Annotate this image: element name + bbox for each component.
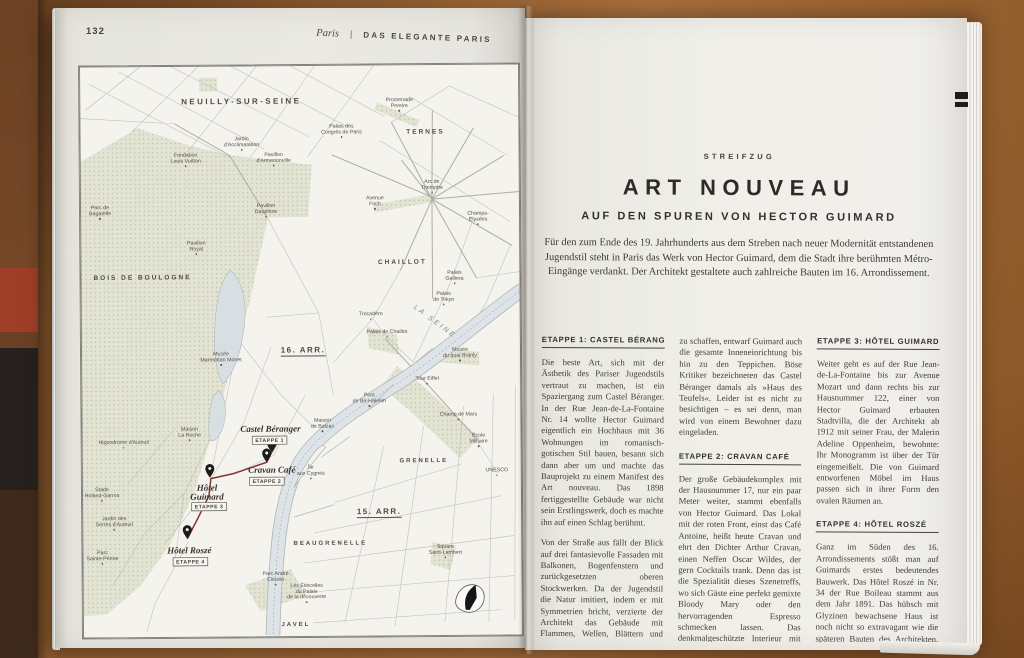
- map-region-label: NEUILLY-SUR-SEINE: [181, 96, 301, 106]
- text-column: ETAPPE 3: HÔTEL GUIMARDWeiter geht es au…: [816, 336, 940, 643]
- map-poi-label: Champs- Élysées: [467, 211, 489, 225]
- paris-map: NEUILLY-SUR-SEINETERNESBOIS DE BOULOGNEC…: [78, 62, 524, 639]
- etappe-heading: ETAPPE 3: HÔTEL GUIMARD: [817, 336, 940, 350]
- map-poi-label: Pavillon d'Armenonville: [256, 152, 291, 166]
- page-number: 132: [86, 26, 105, 37]
- running-header-chapter: DAS ELEGANTE PARIS: [363, 31, 492, 45]
- running-header-separator: |: [350, 29, 353, 39]
- etappe-heading: ETAPPE 2: CRAVAN CAFÉ: [679, 451, 802, 465]
- body-paragraph: Von der Straße aus fällt der Blick auf d…: [540, 537, 663, 643]
- map-poi-label: Trocadéro: [359, 311, 383, 320]
- map-poi-label: Pont de Bir-Hakeim: [353, 392, 387, 406]
- route-stop-badge: ETAPPE 1: [252, 436, 287, 445]
- map-poi-label: Square Saint-Lambert: [429, 544, 462, 558]
- article-kicker: STREIFZUG: [525, 151, 953, 162]
- map-poi-label: Palais de Chaillot: [366, 329, 407, 338]
- route-stop-badge: ETAPPE 3: [191, 502, 226, 511]
- map-labels: NEUILLY-SUR-SEINETERNESBOIS DE BOULOGNEC…: [79, 63, 523, 638]
- map-poi-label: UNESCO: [486, 467, 509, 476]
- map-poi-label: Tour Eiffel: [415, 376, 438, 385]
- furniture-wood: [0, 332, 38, 348]
- map-poi-label: Stade Roland-Garros: [85, 487, 120, 501]
- map-poi-label: Palais des Congrès de Paris: [321, 123, 362, 137]
- text-column: ETAPPE 1: CASTEL BÉRANGERDie beste Art, …: [540, 335, 664, 642]
- chapter-edge-mark: [955, 102, 968, 107]
- map-poi-label: Pavillon Dauphine: [255, 203, 278, 217]
- map-poi-label: Promenade Pereire: [386, 97, 413, 111]
- article-header: STREIFZUG ART NOUVEAU AUF DEN SPUREN VON…: [525, 151, 954, 282]
- map-region-label: 15. ARR.: [357, 507, 402, 518]
- map-poi-label: Fondation Louis Vuitton: [170, 153, 200, 167]
- body-paragraph: Weiter geht es auf der Rue Jean-de-La-Fo…: [816, 358, 939, 507]
- furniture-wood: [0, 0, 38, 268]
- background-furniture: [0, 0, 38, 658]
- route-stop-badge: ETAPPE 2: [249, 477, 284, 486]
- map-poi-label: Palais de Tokyo: [433, 291, 454, 305]
- map-poi-label: Arc de Triomphe: [421, 179, 443, 193]
- map-region-label: CHAILLOT: [378, 259, 427, 266]
- furniture-red-object: [0, 268, 38, 332]
- book-gutter: [518, 6, 534, 654]
- map-poi-label: Musée Marmottan Monet: [200, 351, 241, 365]
- chapter-edge-mark: [955, 92, 968, 99]
- map-poi-label: École Militaire: [464, 433, 492, 447]
- map-poi-label: Jardin d'Acclimatation: [224, 136, 259, 150]
- map-poi-label: Parc André Citroën: [262, 571, 288, 585]
- running-header-book: Paris: [316, 28, 339, 40]
- body-paragraph: Ganz im Süden des 16. Arrondissements st…: [815, 542, 938, 643]
- text-column: zu schaffen, entwarf Guimard auch die ge…: [678, 336, 802, 643]
- map-poi-label: Pavillon Royal: [187, 241, 206, 255]
- route-stop-badge: ETAPPE 4: [173, 557, 208, 566]
- map-region-label: TERNES: [406, 128, 444, 135]
- map-poi-label: Parc de Bagatelle: [89, 205, 111, 219]
- left-page: 132 Paris | DAS ELEGANTE PARIS: [56, 8, 525, 648]
- article-subtitle: AUF DEN SPUREN VON HECTOR GUIMARD: [525, 210, 953, 224]
- map-poi-label: Maison La Roche: [178, 427, 201, 441]
- map-region-label: 16. ARR.: [281, 345, 326, 356]
- map-poi-label: Maison de Balzac: [311, 418, 334, 432]
- running-header: Paris | DAS ELEGANTE PARIS: [289, 22, 520, 48]
- article-columns: ETAPPE 1: CASTEL BÉRANGERDie beste Art, …: [540, 335, 940, 643]
- route-stop-name: Hôtel Roszé: [167, 546, 211, 555]
- etappe-heading: ETAPPE 4: HÔTEL ROSZÉ: [816, 520, 939, 534]
- etappe-heading: ETAPPE 1: CASTEL BÉRANGER: [542, 335, 665, 349]
- furniture-dark-object: [0, 348, 38, 490]
- map-poi-label: Hippodrome d'Auteuil: [98, 440, 148, 449]
- article-title: ART NOUVEAU: [525, 174, 953, 202]
- map-poi-label: Avenue Foch: [366, 195, 384, 209]
- map-poi-label: Palais Galliera: [445, 270, 463, 284]
- map-poi-label: Jardin des Serres d'Auteuil: [96, 516, 133, 530]
- map-poi-label: Île aux Cygnes: [297, 465, 325, 479]
- body-paragraph: Der große Gebäudekomplex mit der Hausnum…: [678, 473, 802, 643]
- right-page-edges: [967, 22, 982, 646]
- route-stop-name: Hôtel Guimard: [190, 484, 224, 502]
- map-region-label: BOIS DE BOULOGNE: [93, 274, 191, 282]
- body-paragraph: zu schaffen, entwarf Guimard auch die ge…: [679, 336, 802, 439]
- map-poi-label: Musée du quai Branly: [443, 347, 477, 361]
- photo-scene: 132 Paris | DAS ELEGANTE PARIS: [0, 0, 1024, 658]
- map-poi-label: Les Étincelles du Palais de la découvert…: [287, 583, 326, 603]
- river-label: LA SEINE: [412, 304, 457, 340]
- body-paragraph: Die beste Art, sich mit der Ästhetik des…: [541, 357, 665, 529]
- route-stop-name: Cravan Café: [248, 466, 295, 475]
- map-region-label: JAVEL: [281, 622, 310, 628]
- map-region-label: GRENELLE: [399, 458, 448, 464]
- map-poi-label: Parc Sainte-Périne: [86, 550, 118, 564]
- right-page: STREIFZUG ART NOUVEAU AUF DEN SPUREN VON…: [525, 18, 967, 650]
- map-poi-label: Champ de Mars: [440, 411, 478, 420]
- article-intro: Für den zum Ende des 19. Jahrhunderts au…: [543, 236, 935, 282]
- furniture-wood: [0, 490, 38, 658]
- route-stop-name: Castel Béranger: [240, 425, 300, 434]
- map-region-label: BEAUGRENELLE: [293, 541, 367, 548]
- open-book: 132 Paris | DAS ELEGANTE PARIS: [52, 6, 976, 654]
